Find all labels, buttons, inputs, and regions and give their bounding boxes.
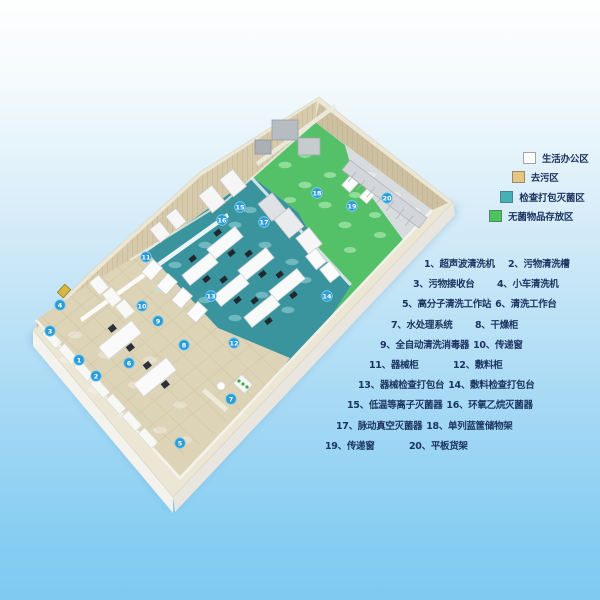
svg-text:19: 19 bbox=[347, 202, 357, 210]
room-marker: 2 bbox=[91, 371, 102, 382]
room-marker: 18 bbox=[312, 188, 323, 199]
room-marker: 4 bbox=[55, 300, 66, 311]
svg-text:6: 6 bbox=[127, 359, 132, 367]
svg-text:2: 2 bbox=[94, 372, 99, 380]
room-marker: 1 bbox=[74, 355, 85, 366]
svg-text:13: 13 bbox=[206, 292, 215, 300]
svg-text:17: 17 bbox=[259, 218, 268, 226]
svg-text:10: 10 bbox=[137, 302, 147, 310]
room-marker: 16 bbox=[217, 215, 228, 226]
svg-text:15: 15 bbox=[235, 203, 245, 211]
room-marker: 13 bbox=[206, 291, 217, 302]
svg-text:5: 5 bbox=[178, 439, 183, 447]
room-marker: 17 bbox=[259, 217, 270, 228]
svg-text:18: 18 bbox=[312, 189, 322, 197]
svg-text:12: 12 bbox=[229, 339, 238, 347]
room-marker: 8 bbox=[179, 340, 190, 351]
svg-text:7: 7 bbox=[229, 395, 234, 403]
floor-plan-infographic: 1234567891011121314151617181920 生活办公区去污区… bbox=[0, 0, 600, 600]
room-marker: 15 bbox=[235, 202, 246, 213]
decor-sphere bbox=[217, 382, 225, 390]
room-marker: 6 bbox=[124, 358, 135, 369]
svg-text:9: 9 bbox=[156, 317, 161, 325]
room-marker: 7 bbox=[226, 394, 237, 405]
room-marker: 10 bbox=[137, 301, 148, 312]
room-marker: 19 bbox=[347, 201, 358, 212]
svg-text:3: 3 bbox=[48, 327, 53, 335]
room-marker: 20 bbox=[382, 193, 393, 204]
room-marker: 3 bbox=[45, 326, 56, 337]
svg-text:14: 14 bbox=[322, 292, 332, 300]
room-marker: 14 bbox=[322, 291, 333, 302]
room-marker: 5 bbox=[175, 438, 186, 449]
svg-text:16: 16 bbox=[217, 216, 227, 224]
svg-text:20: 20 bbox=[382, 194, 392, 202]
room-illustration: 1234567891011121314151617181920 bbox=[0, 0, 600, 600]
svg-text:11: 11 bbox=[141, 253, 151, 261]
room-marker: 12 bbox=[229, 338, 240, 349]
room-marker: 9 bbox=[153, 316, 164, 327]
svg-text:4: 4 bbox=[58, 301, 63, 309]
svg-text:1: 1 bbox=[77, 356, 82, 364]
svg-text:8: 8 bbox=[182, 341, 187, 349]
room-marker: 11 bbox=[141, 252, 152, 263]
